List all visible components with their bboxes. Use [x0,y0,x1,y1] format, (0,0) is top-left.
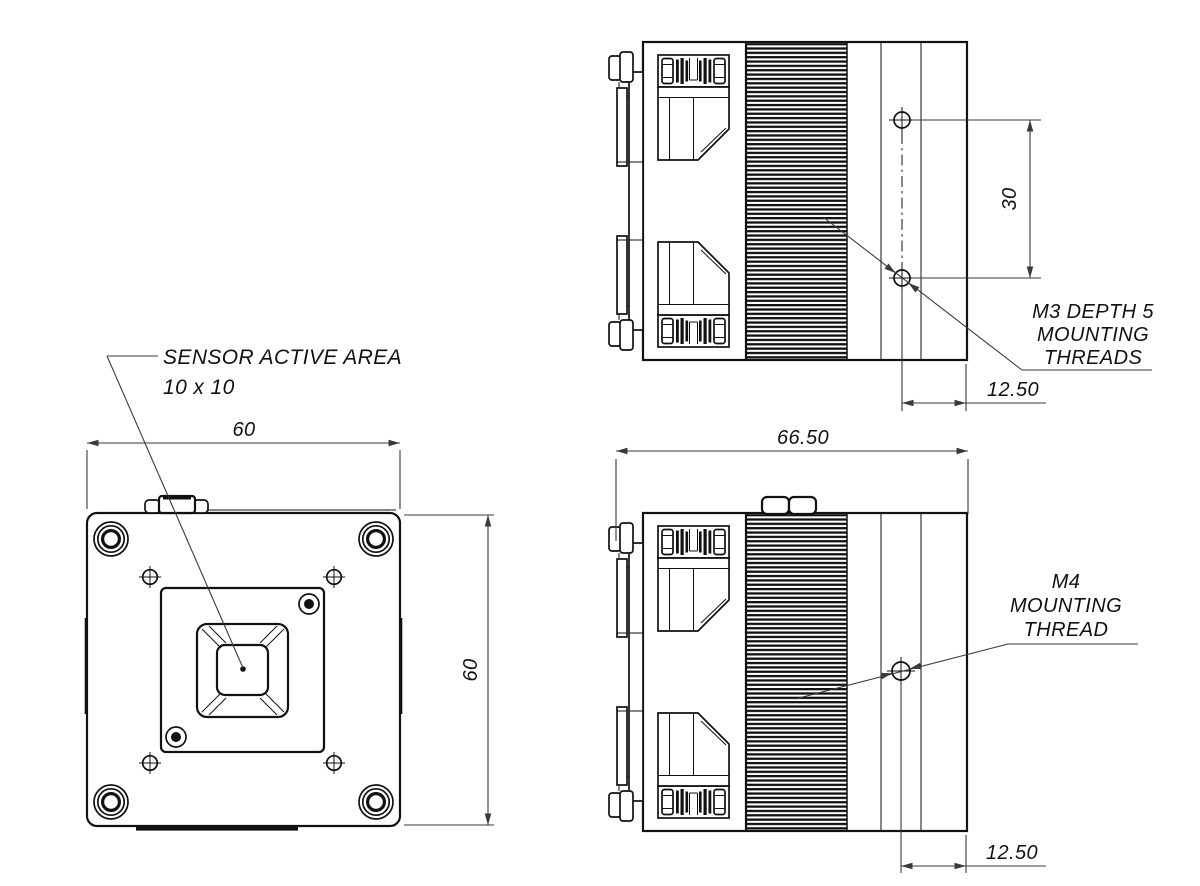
connector-front [145,496,208,514]
bottom-step [136,826,298,831]
corner-screw [359,522,393,556]
sensor-window [197,624,288,717]
front-view: SENSOR ACTIVE AREA 10 x 10 60 60 [86,346,494,831]
callout-m3-line1: M3 DEPTH 5 [1032,301,1154,323]
side-view-bottom: 66.50 12.50 M4 MOUNTING THREAD [609,427,1138,873]
callout-m3-line2: MOUNTING [1037,324,1149,346]
dim-front-height-label: 60 [460,658,482,681]
callout-m3-line3: THREADS [1044,347,1143,369]
technical-drawing: 30 12.50 M3 DEPTH 5 MOUNTING THREADS [0,0,1200,886]
callout-m4-line2: MOUNTING [1010,595,1122,617]
dim-front-width: 60 [87,419,400,509]
callout-sensor-line1: SENSOR ACTIVE AREA [163,346,402,369]
dim-m4-offset-label: 12.50 [986,842,1038,864]
drawing-sheet: 30 12.50 M3 DEPTH 5 MOUNTING THREADS [0,0,1200,886]
camera-side-body [609,42,967,360]
board-screw [299,594,319,614]
dim-hole-spacing-label: 30 [999,187,1021,210]
side-view-top: 30 12.50 M3 DEPTH 5 MOUNTING THREADS [609,42,1154,411]
callout-m4-line3: THREAD [1024,619,1109,641]
corner-screw [94,785,128,819]
dim-front-width-label: 60 [232,419,255,441]
dim-m3-offset-label: 12.50 [987,379,1039,401]
board-screw [166,727,186,747]
callout-sensor-line2: 10 x 10 [163,376,235,399]
connector-top [762,497,816,514]
camera-side-body [609,513,967,831]
dim-front-height: 60 [404,515,494,825]
callout-m4-line1: M4 [1052,571,1081,593]
corner-screw [359,785,393,819]
dim-body-length-label: 66.50 [777,427,829,449]
corner-screw [94,522,128,556]
